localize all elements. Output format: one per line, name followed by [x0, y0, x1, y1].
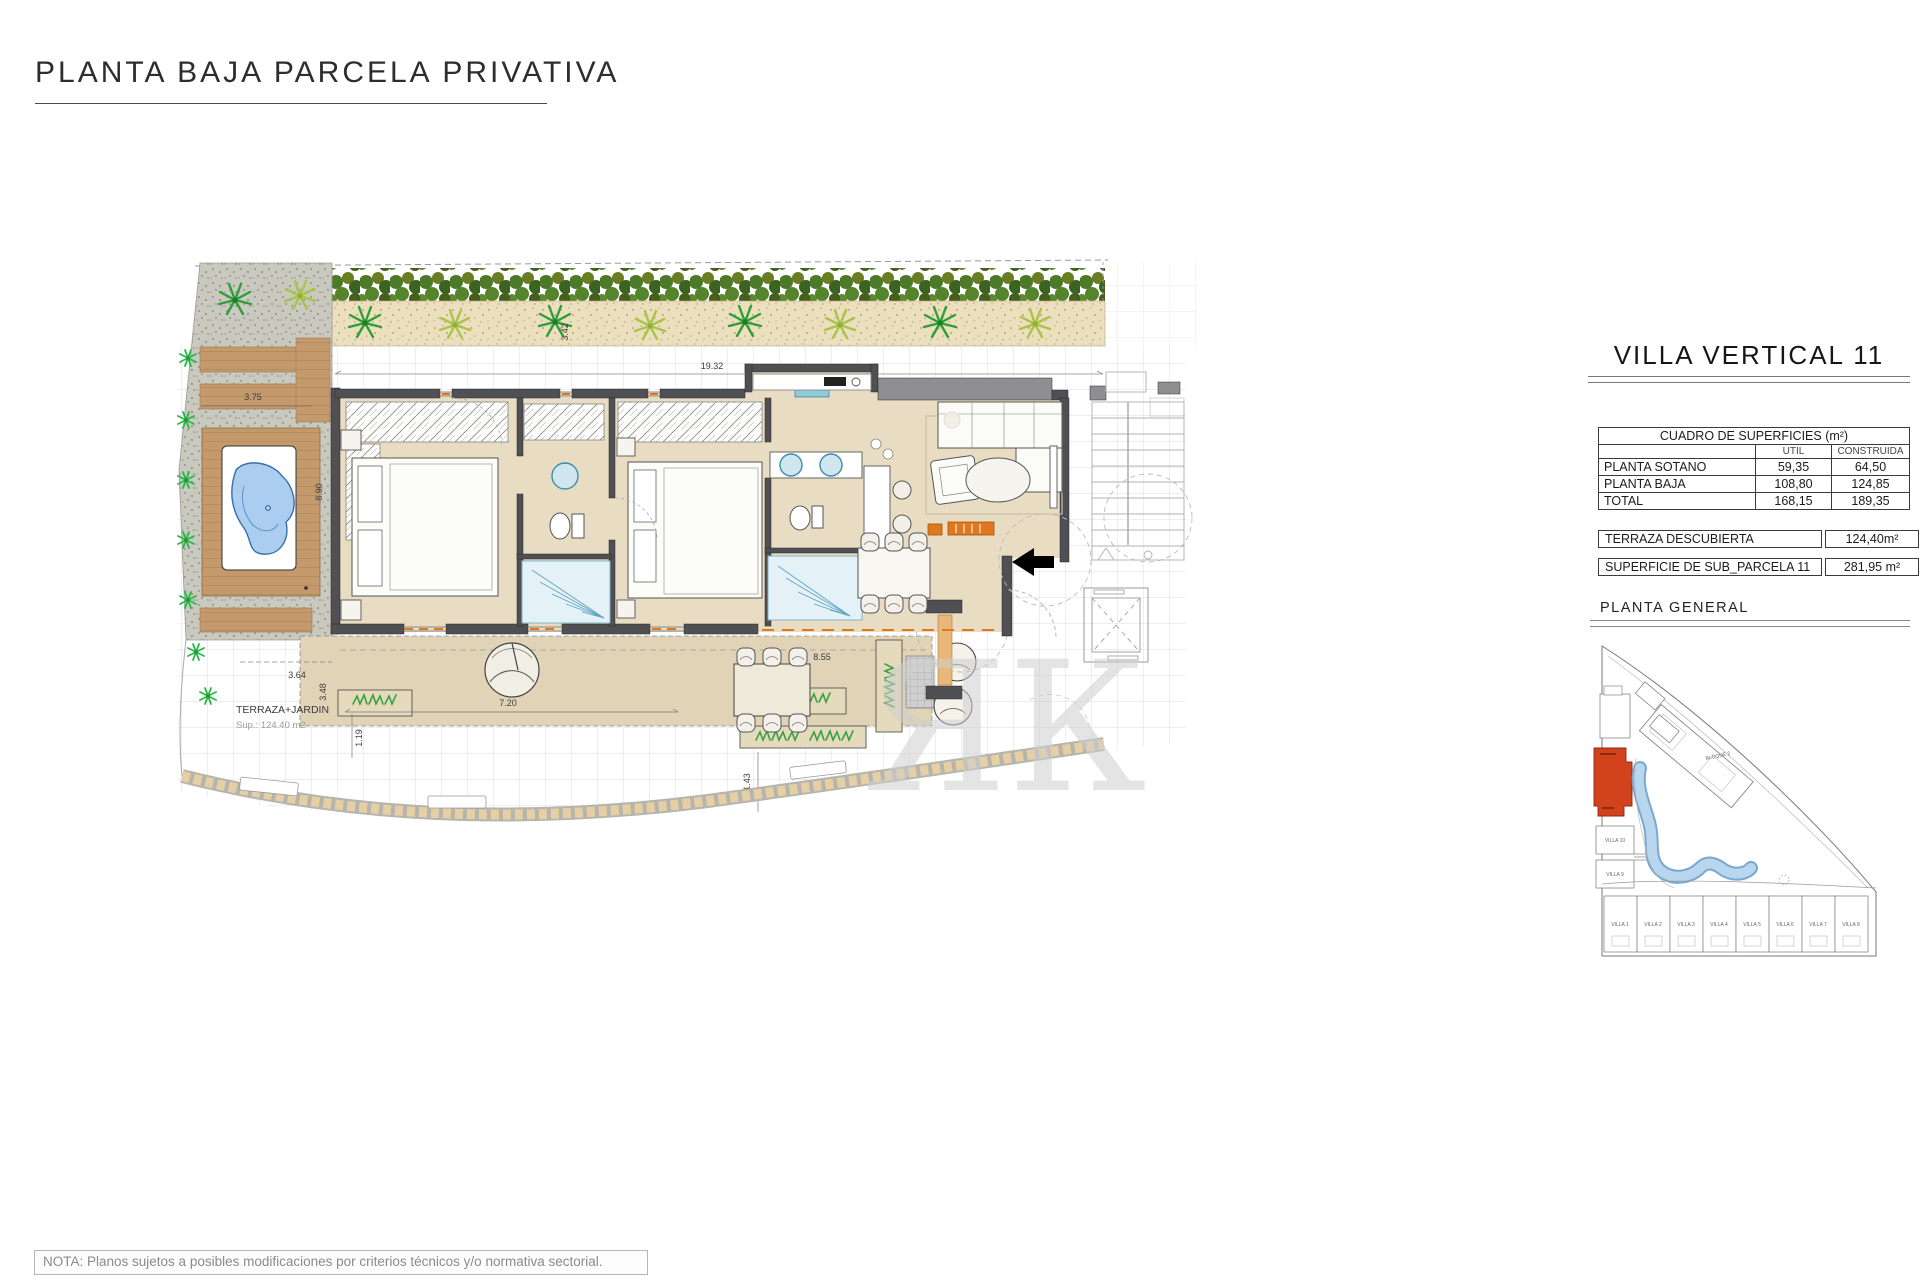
row-label: PLANTA BAJA	[1599, 476, 1756, 492]
col-util: UTIL	[1756, 445, 1832, 458]
table-row-total: TOTAL 168,15 189,35	[1599, 493, 1909, 509]
terraza-value: 124,40m²	[1825, 530, 1919, 548]
footer-note: NOTA: Planos sujetos a posibles modifica…	[34, 1250, 648, 1275]
col-construida: CONSTRUIDA	[1832, 445, 1909, 458]
surfaces-table-columns: UTIL CONSTRUIDA	[1599, 445, 1909, 459]
villa-row: VILLA 1 VILLA 2 VILLA 3 VILLA 4 VILLA 5 …	[1604, 896, 1868, 952]
row-construida: 189,35	[1832, 493, 1909, 509]
villa-label: VILLA 3	[1677, 922, 1695, 928]
row-construida: 64,50	[1832, 459, 1909, 475]
highlighted-block	[1594, 748, 1632, 816]
dim-348: 3.48	[318, 683, 328, 701]
table-row-sotano: PLANTA SOTANO 59,35 64,50	[1599, 459, 1909, 476]
dim-364: 3.64	[288, 670, 306, 680]
villa-title: VILLA VERTICAL 11	[1588, 340, 1910, 371]
dim-top-label: 19.32	[701, 361, 724, 371]
terrace-jardin-sup: Sup.: 124.40 m2	[236, 720, 306, 731]
plan-sheet: 3.42 3.75 8.90	[0, 0, 1920, 1280]
villa9-label: VILLA 9	[1606, 872, 1624, 878]
dim-855: 8.55	[813, 652, 831, 662]
villa-label: VILLA 1	[1611, 922, 1629, 928]
row-construida: 124,85	[1832, 476, 1909, 492]
dim-720: 7.20	[499, 698, 517, 708]
villa-label: VILLA 8	[1842, 922, 1860, 928]
planta-general-title: PLANTA GENERAL	[1600, 600, 1749, 616]
villa-label: VILLA 5	[1743, 922, 1761, 928]
surfaces-table: CUADRO DE SUPERFICIES (m²) UTIL CONSTRUI…	[1598, 427, 1910, 510]
surfaces-table-header: CUADRO DE SUPERFICIES (m²)	[1599, 428, 1909, 445]
outdoor-dining	[734, 648, 810, 732]
dim-sand-height: 3.42	[560, 323, 570, 341]
dim-deck-width: 3.75	[244, 392, 262, 402]
terraza-label: TERRAZA DESCUBIERTA	[1598, 530, 1822, 548]
row-util: 168,15	[1756, 493, 1832, 509]
dim-deck-height: 8.90	[314, 483, 324, 501]
villa-label: VILLA 2	[1644, 922, 1662, 928]
villa-label: VILLA 7	[1809, 922, 1827, 928]
page-title: PLANTA BAJA PARCELA PRIVATIVA	[35, 56, 619, 90]
dim-119: 1.19	[354, 729, 364, 747]
subparcela-row: SUPERFICIE DE SUB_PARCELA 11 281,95 m²	[1598, 558, 1919, 576]
planta-general-underline	[1590, 620, 1910, 627]
row-util: 108,80	[1756, 476, 1832, 492]
page-title-underline	[35, 103, 547, 104]
terrace-jardin-label: TERRAZA+JARDIN	[236, 704, 329, 716]
villa-label: VILLA 6	[1776, 922, 1794, 928]
table-row-baja: PLANTA BAJA 108,80 124,85	[1599, 476, 1909, 493]
watermark: ЯК	[862, 624, 1147, 833]
garden-sand-strip: 3.42	[332, 301, 1105, 346]
row-label: PLANTA SOTANO	[1599, 459, 1756, 475]
villa-label: VILLA 4	[1710, 922, 1728, 928]
site-plan: VILLA 10 VILLA 9 BLOQUE 2	[1588, 630, 1910, 962]
subparcela-value: 281,95 m²	[1825, 558, 1919, 576]
villa-title-underline	[1588, 376, 1910, 383]
row-label: TOTAL	[1599, 493, 1756, 509]
row-util: 59,35	[1756, 459, 1832, 475]
terraza-row: TERRAZA DESCUBIERTA 124,40m²	[1598, 530, 1919, 548]
villa10-label: VILLA 10	[1605, 838, 1626, 844]
subparcela-label: SUPERFICIE DE SUB_PARCELA 11	[1598, 558, 1822, 576]
bedroom-2	[615, 402, 762, 618]
hanging-chair	[485, 643, 539, 697]
bedroom-1	[341, 398, 508, 620]
